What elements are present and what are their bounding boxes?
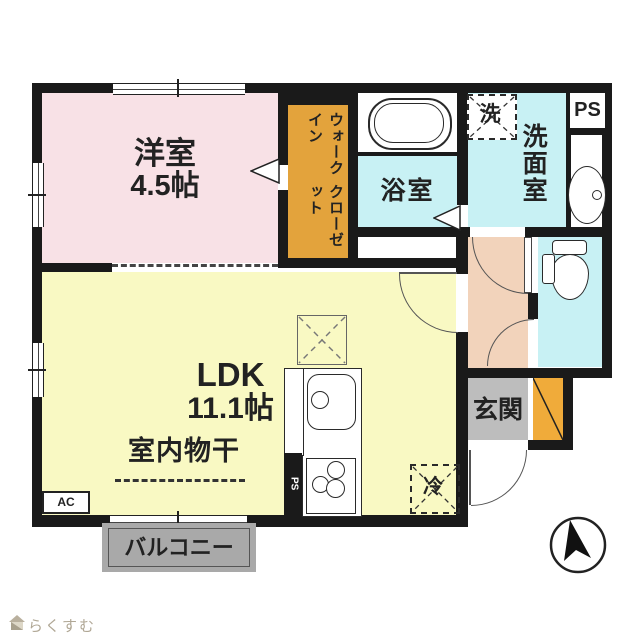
washer-label: 洗 bbox=[467, 94, 513, 136]
north-arrow-icon bbox=[546, 514, 610, 578]
wall-wic-right bbox=[348, 93, 358, 268]
bathtub-inner-line bbox=[374, 103, 444, 143]
open-partition-dashed bbox=[112, 264, 278, 267]
wall-tub-ledge bbox=[358, 152, 457, 156]
indoor-drying-label: 室内物干 bbox=[110, 436, 258, 466]
wall-genkan-top bbox=[468, 368, 612, 378]
wall-wic-left-upper bbox=[278, 93, 288, 165]
wic-label-line1: ウォークイン bbox=[290, 112, 346, 184]
door-leaf-entry bbox=[469, 450, 471, 505]
shoe-cabinet-diagonal bbox=[533, 378, 563, 440]
floor-plan: PS PS 洗 冷 AC bbox=[0, 0, 640, 640]
ldk-area: 11.1帖 bbox=[187, 393, 274, 425]
door-gap-washroom bbox=[470, 227, 525, 237]
western-room-label: 洋室 4.5帖 bbox=[80, 122, 250, 217]
ldk-label: LDK 11.1帖 bbox=[148, 352, 313, 430]
wall-entry-south bbox=[528, 440, 573, 450]
western-room-name: 洋室 bbox=[134, 138, 196, 171]
wall-hall-west-upper bbox=[456, 236, 468, 274]
entrance-label: 玄関 bbox=[468, 395, 528, 425]
watermark-logo-icon bbox=[8, 614, 26, 632]
western-room-area: 4.5帖 bbox=[130, 171, 199, 201]
wall-ldk-north bbox=[278, 258, 460, 268]
toilet-tank-icon bbox=[552, 240, 587, 255]
window-north bbox=[113, 83, 245, 95]
washroom-label: 洗面室 bbox=[516, 103, 550, 223]
stove-burner-2 bbox=[327, 461, 345, 479]
fridge-label: 冷 bbox=[410, 464, 456, 510]
toilet-control-icon bbox=[542, 254, 555, 284]
ps-shaft-kitchen-label: PS bbox=[284, 453, 302, 515]
shoe-cabinet bbox=[533, 378, 563, 440]
vanity-faucet-icon bbox=[592, 190, 602, 200]
balcony-label: バルコニー bbox=[102, 523, 256, 572]
window-west-upper-tick bbox=[28, 194, 46, 196]
window-north-tick bbox=[177, 79, 179, 97]
window-west-lower-tick bbox=[28, 369, 46, 371]
wall-wic-top bbox=[278, 93, 358, 105]
kitchen-faucet-icon bbox=[311, 391, 329, 409]
door-leaf-washroom bbox=[524, 237, 532, 293]
wall-toilet-left bbox=[528, 293, 538, 319]
stove-burner-3 bbox=[326, 479, 345, 498]
door-arc-entry bbox=[471, 450, 527, 506]
wall-wic-left-lower bbox=[278, 190, 288, 268]
wic-label: ウォークイン クローゼット bbox=[290, 112, 346, 256]
wall-washroom-counter-divider bbox=[566, 127, 571, 227]
wic-label-line2: クローゼット bbox=[290, 184, 346, 256]
watermark-text: らくすむ bbox=[28, 615, 96, 636]
door-leaf-ldk bbox=[399, 272, 457, 274]
ps-shaft-top: PS bbox=[570, 93, 605, 128]
door-triangle-bath bbox=[433, 205, 461, 231]
ac-unit: AC bbox=[42, 491, 90, 514]
bath-label: 浴室 bbox=[358, 176, 457, 206]
wall-left bbox=[32, 83, 42, 527]
wall-partition-west bbox=[32, 263, 112, 272]
indoor-drying-dashes bbox=[115, 479, 245, 482]
door-triangle-wic bbox=[250, 158, 280, 184]
ldk-name: LDK bbox=[197, 358, 265, 393]
